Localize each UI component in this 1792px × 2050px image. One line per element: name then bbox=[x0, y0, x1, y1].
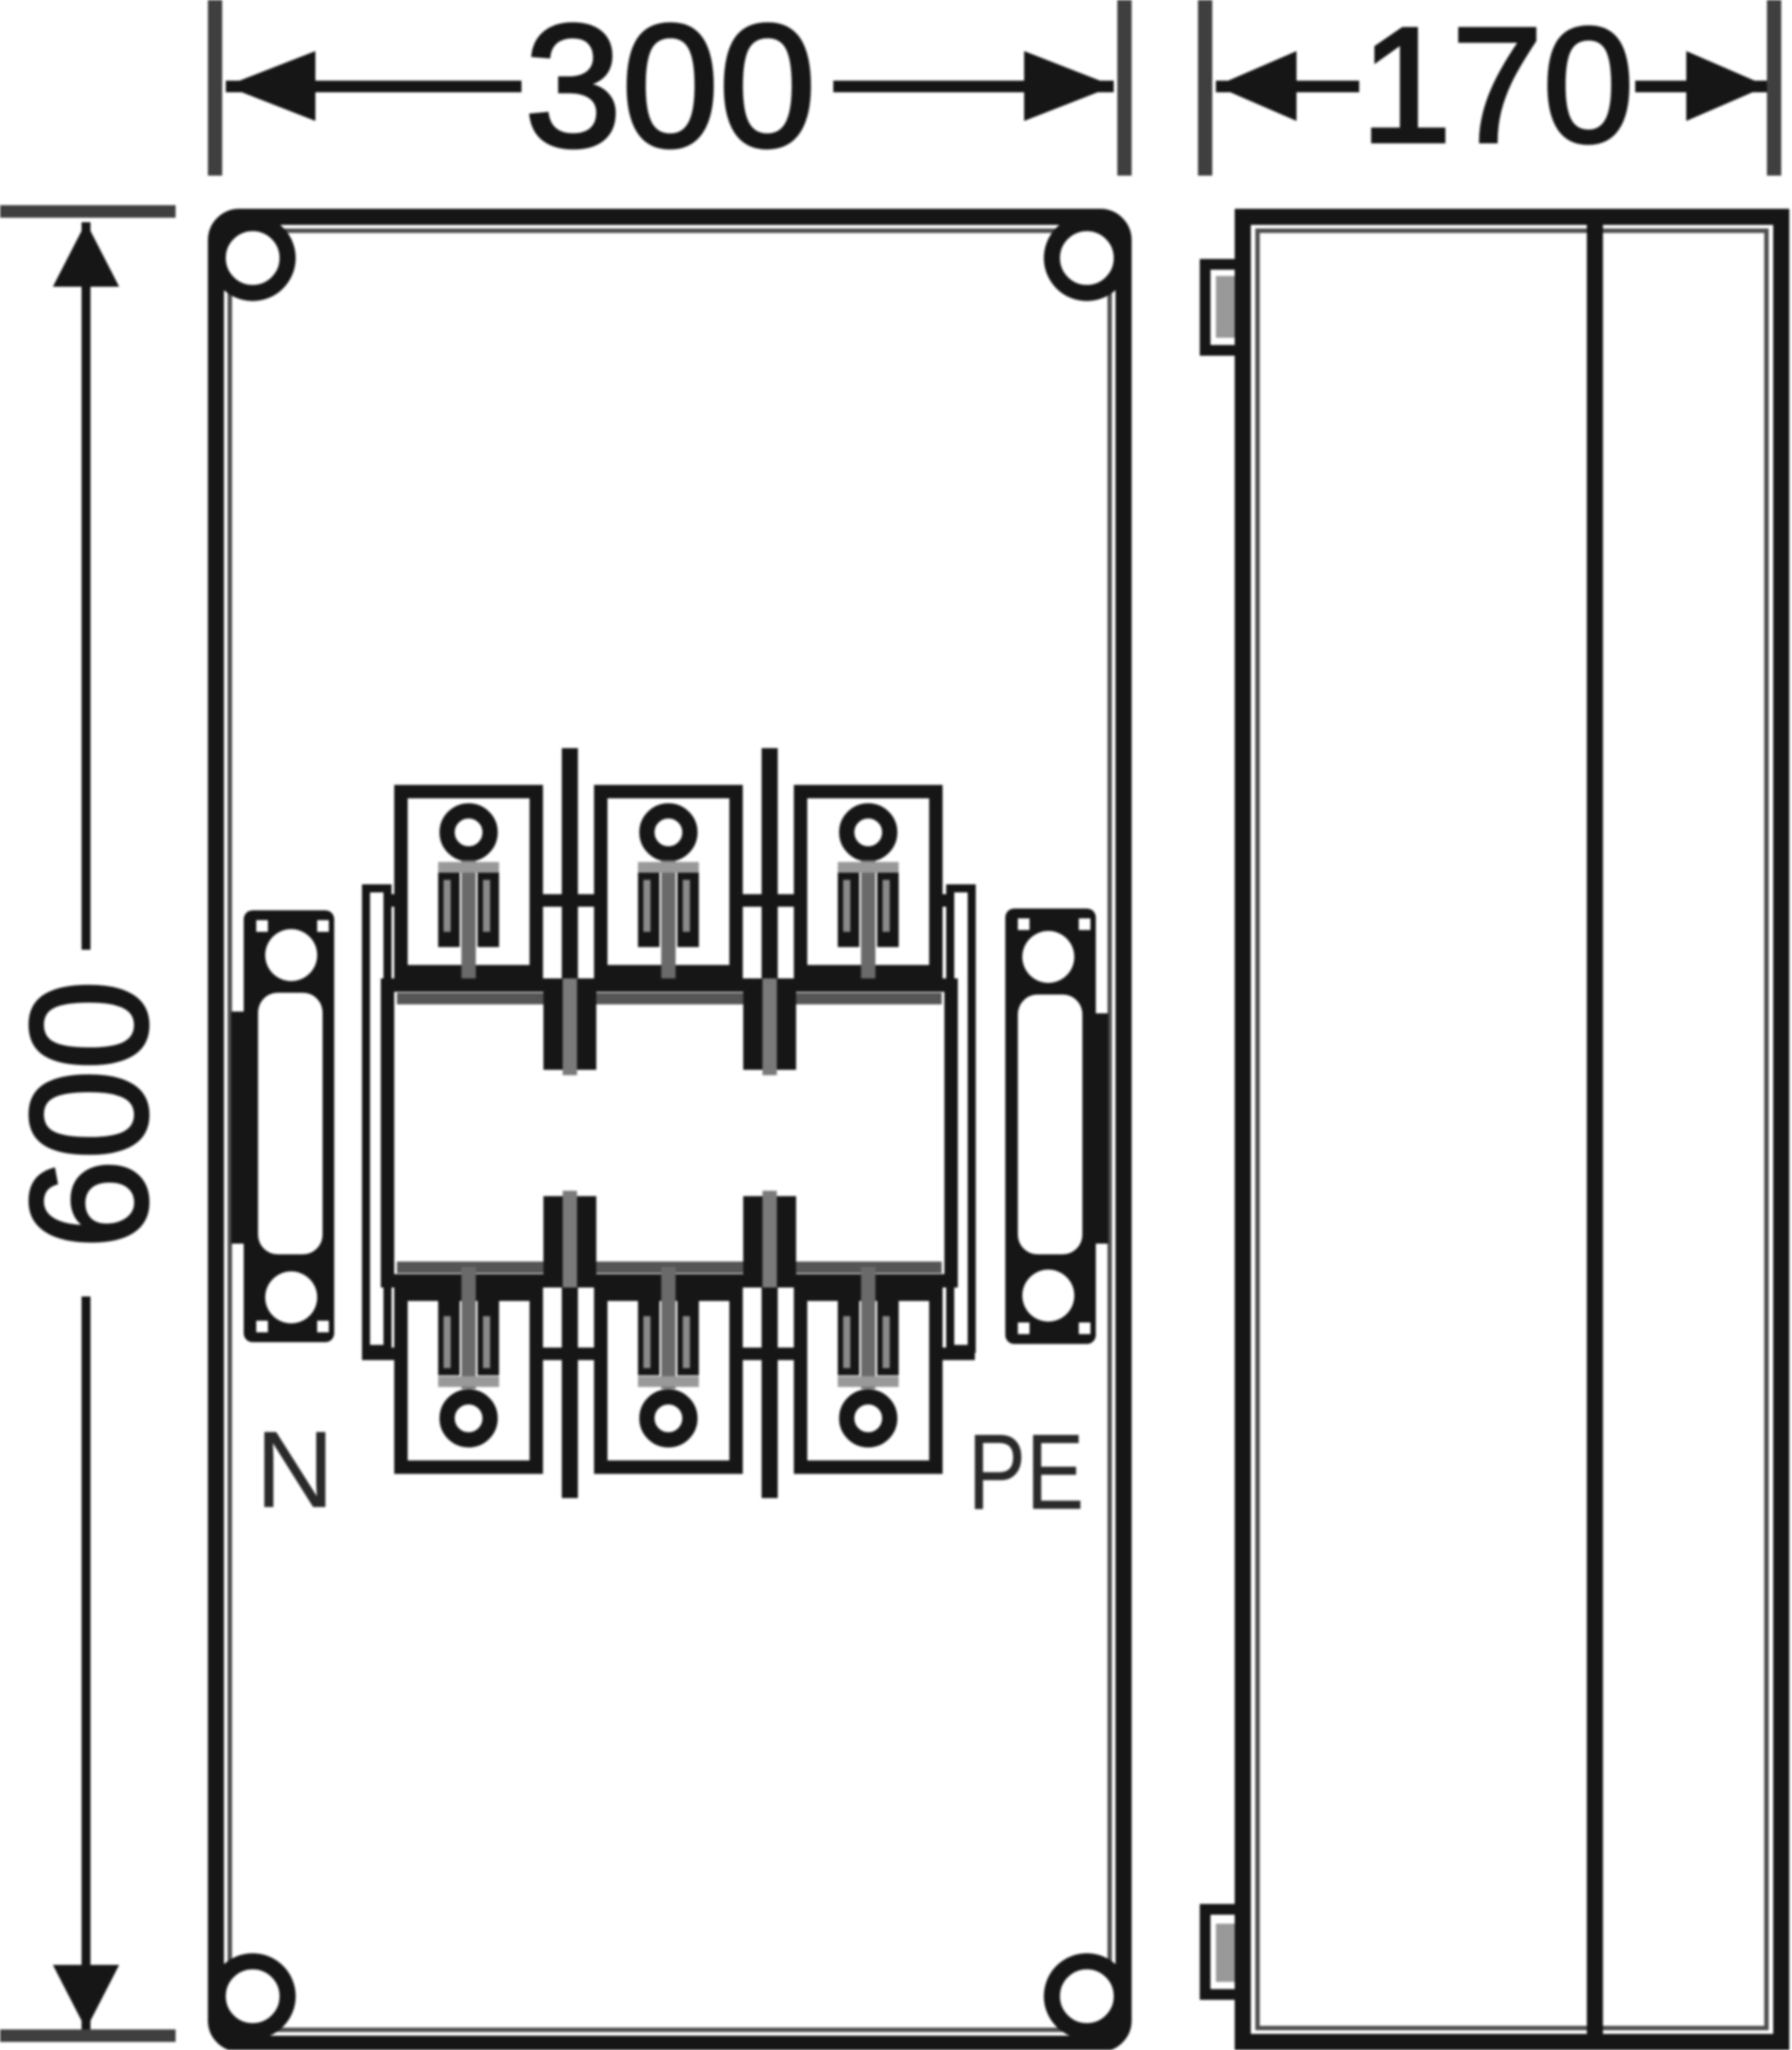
svg-text:600: 600 bbox=[0, 980, 182, 1249]
svg-text:N: N bbox=[255, 1408, 334, 1530]
svg-text:170: 170 bbox=[1360, 0, 1633, 177]
svg-text:PE: PE bbox=[968, 1412, 1084, 1532]
svg-text:300: 300 bbox=[524, 0, 815, 184]
